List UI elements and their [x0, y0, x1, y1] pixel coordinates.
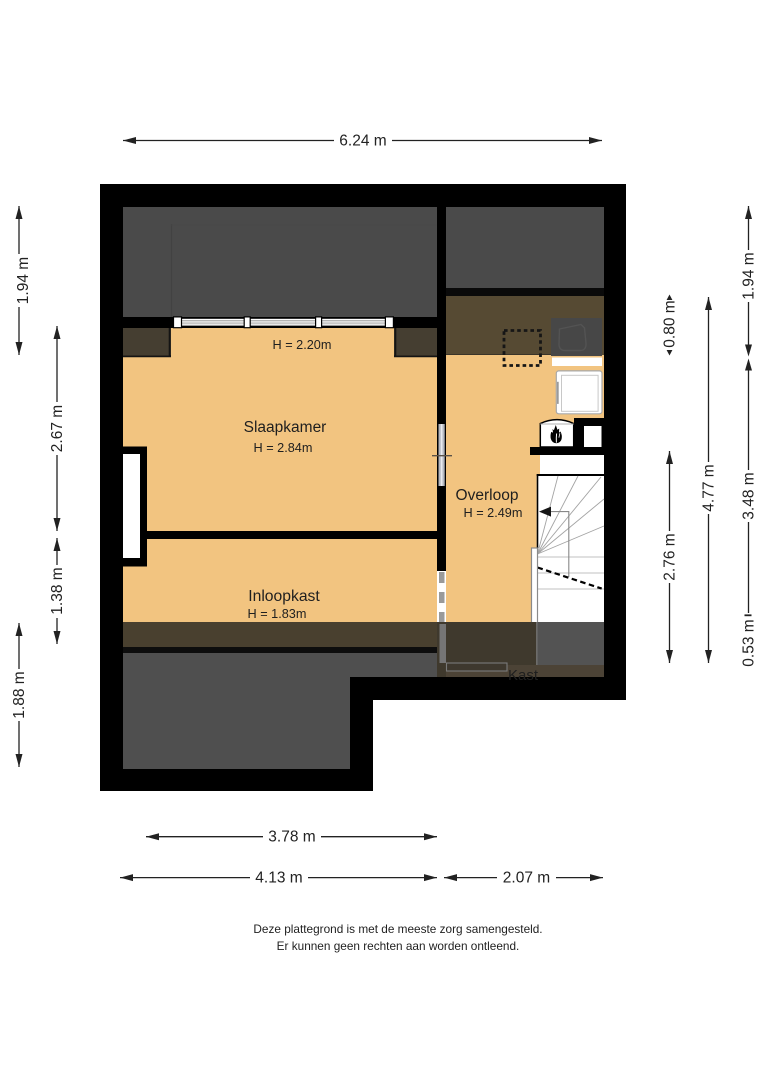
svg-text:Er kunnen geen rechten aan wor: Er kunnen geen rechten aan worden ontlee…	[277, 939, 520, 953]
svg-text:6.24 m: 6.24 m	[339, 133, 386, 150]
svg-text:H = 2.84m: H = 2.84m	[254, 441, 313, 455]
svg-text:4.13 m: 4.13 m	[255, 870, 302, 887]
svg-text:0.80 m: 0.80 m	[662, 300, 679, 347]
svg-text:3.48 m: 3.48 m	[741, 472, 758, 519]
svg-text:1.88 m: 1.88 m	[11, 671, 28, 718]
svg-text:2.76 m: 2.76 m	[662, 533, 679, 580]
svg-text:1.94 m: 1.94 m	[741, 252, 758, 299]
svg-text:4.77 m: 4.77 m	[701, 464, 718, 511]
svg-text:0.53 m: 0.53 m	[741, 619, 758, 666]
svg-text:Slaapkamer: Slaapkamer	[244, 419, 327, 436]
svg-text:2.67 m: 2.67 m	[49, 405, 66, 452]
svg-text:3.78 m: 3.78 m	[268, 829, 315, 846]
svg-text:Inloopkast: Inloopkast	[248, 588, 320, 605]
svg-text:Kast: Kast	[508, 667, 539, 684]
svg-text:1.94 m: 1.94 m	[15, 257, 32, 304]
svg-text:Deze plattegrond is met de mee: Deze plattegrond is met de meeste zorg s…	[253, 922, 542, 936]
svg-text:1.38 m: 1.38 m	[49, 567, 66, 614]
svg-text:H = 1.83m: H = 1.83m	[248, 607, 307, 621]
svg-text:Overloop: Overloop	[456, 487, 519, 504]
svg-text:2.07 m: 2.07 m	[503, 870, 550, 887]
svg-text:H = 2.49m: H = 2.49m	[464, 506, 523, 520]
svg-text:H = 2.20m: H = 2.20m	[273, 338, 332, 352]
